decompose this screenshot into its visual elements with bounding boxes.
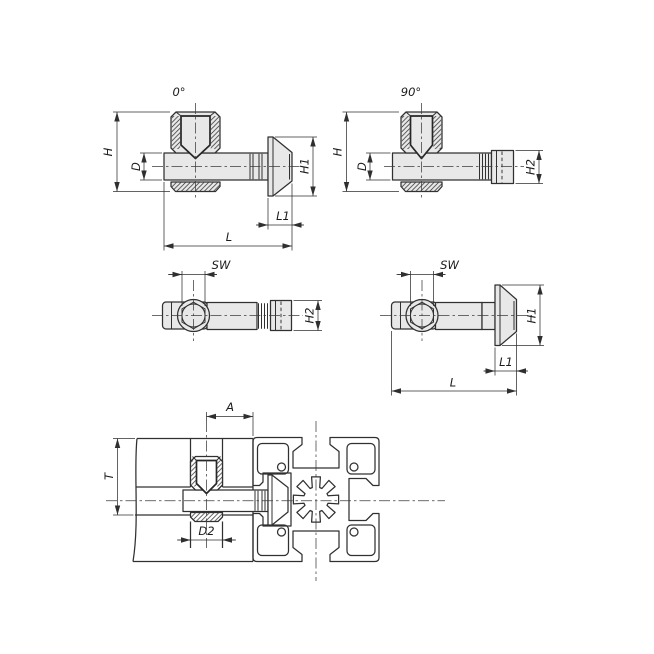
dimensions-assembly bbox=[113, 412, 253, 540]
view-top-0deg: SW H2 bbox=[152, 258, 322, 341]
dimensions-top-90deg bbox=[392, 271, 545, 396]
dim-label-h1: H1 bbox=[298, 158, 312, 174]
view-top-90deg: SW H1 L1 L bbox=[380, 258, 544, 396]
bolt-shaft-top bbox=[207, 303, 257, 330]
dim-label-a: A bbox=[225, 400, 234, 414]
dim-label-h1: H1 bbox=[525, 308, 539, 324]
screw-channel-hook bbox=[350, 528, 358, 536]
ring-section bbox=[482, 303, 495, 330]
dim-label-sw: SW bbox=[440, 258, 459, 272]
break-line bbox=[133, 439, 137, 562]
section-hatch bbox=[172, 116, 180, 149]
drawing-page: 0° H D H1 L1 L 90° H D H2 bbox=[0, 0, 654, 654]
technical-drawing: 0° H D H1 L1 L 90° H D H2 bbox=[0, 0, 654, 654]
dim-label-l1: L1 bbox=[276, 209, 290, 223]
view-side-90deg: 90° H D H2 bbox=[331, 85, 544, 200]
bolt-t-head bbox=[268, 475, 288, 525]
screw-channel-hook bbox=[350, 463, 358, 471]
dim-label-d2: D2 bbox=[198, 524, 214, 538]
screw-channel-hook bbox=[278, 528, 286, 536]
angle-label-0deg: 0° bbox=[172, 85, 185, 99]
section-hatch bbox=[402, 116, 410, 149]
bolt-t-head-edge bbox=[492, 151, 514, 184]
dim-label-h: H bbox=[101, 147, 115, 156]
section-hatch bbox=[433, 116, 441, 149]
dim-label-d: D bbox=[129, 162, 143, 171]
dim-label-d: D bbox=[355, 162, 369, 171]
dim-label-t: T bbox=[102, 472, 116, 480]
section-hatch bbox=[211, 116, 219, 149]
dim-label-l: L bbox=[450, 376, 456, 390]
bolt-shaft-top bbox=[436, 303, 483, 330]
angle-label-90deg: 90° bbox=[401, 85, 421, 99]
dim-label-h: H bbox=[331, 147, 345, 156]
dim-label-h2: H2 bbox=[524, 159, 538, 175]
view-assembly: A T D2 bbox=[102, 400, 445, 581]
dim-label-h2: H2 bbox=[303, 308, 317, 324]
screw-channel-hook bbox=[278, 463, 286, 471]
dim-label-l: L bbox=[226, 230, 232, 244]
section-hatch bbox=[217, 461, 222, 487]
section-hatch bbox=[191, 461, 196, 487]
view-side-0deg: 0° H D H1 L1 L bbox=[101, 85, 317, 251]
dim-label-sw: SW bbox=[212, 258, 231, 272]
dim-label-l1: L1 bbox=[499, 355, 513, 369]
